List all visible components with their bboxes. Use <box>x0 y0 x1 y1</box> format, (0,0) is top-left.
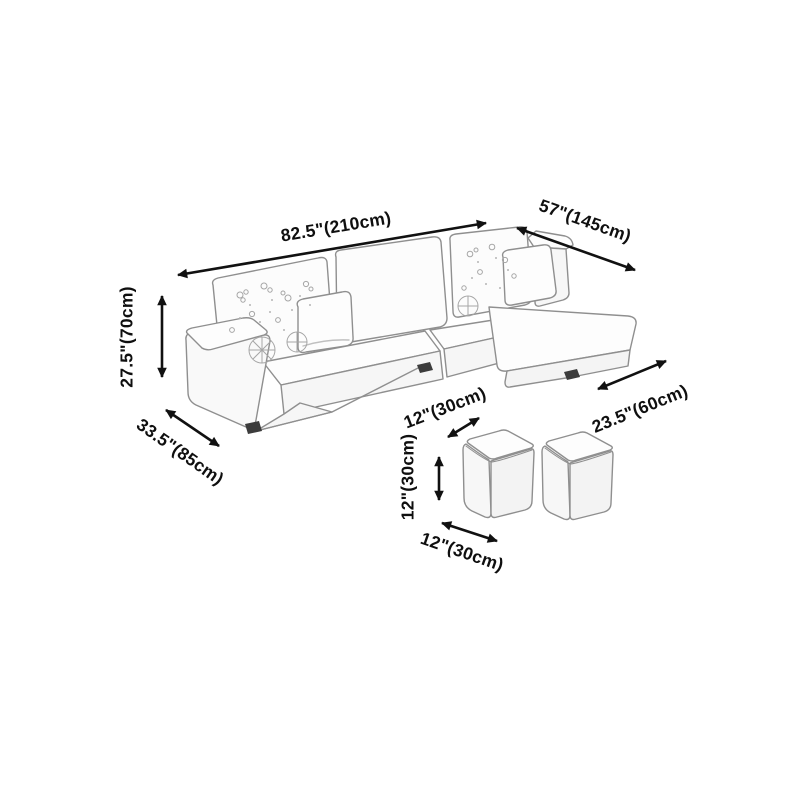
arrow-ottoman-top-width <box>448 418 479 437</box>
label-ottoman-height: 12"(30cm) <box>398 434 419 520</box>
middle-pillow <box>297 292 353 353</box>
sofa-base <box>256 403 332 431</box>
ottoman-cube-2 <box>542 432 613 520</box>
left-arm-front <box>186 332 270 428</box>
sofa-dimension-diagram: 82.5"(210cm) 57"(145cm) 27.5"(70cm) 33.5… <box>0 0 800 800</box>
sofa-sketch-group <box>186 227 636 434</box>
corner-pillow <box>503 245 557 305</box>
ottoman-cube <box>463 430 534 518</box>
ottoman-right-face <box>491 449 534 518</box>
label-sofa-height: 27.5"(70cm) <box>117 286 138 388</box>
